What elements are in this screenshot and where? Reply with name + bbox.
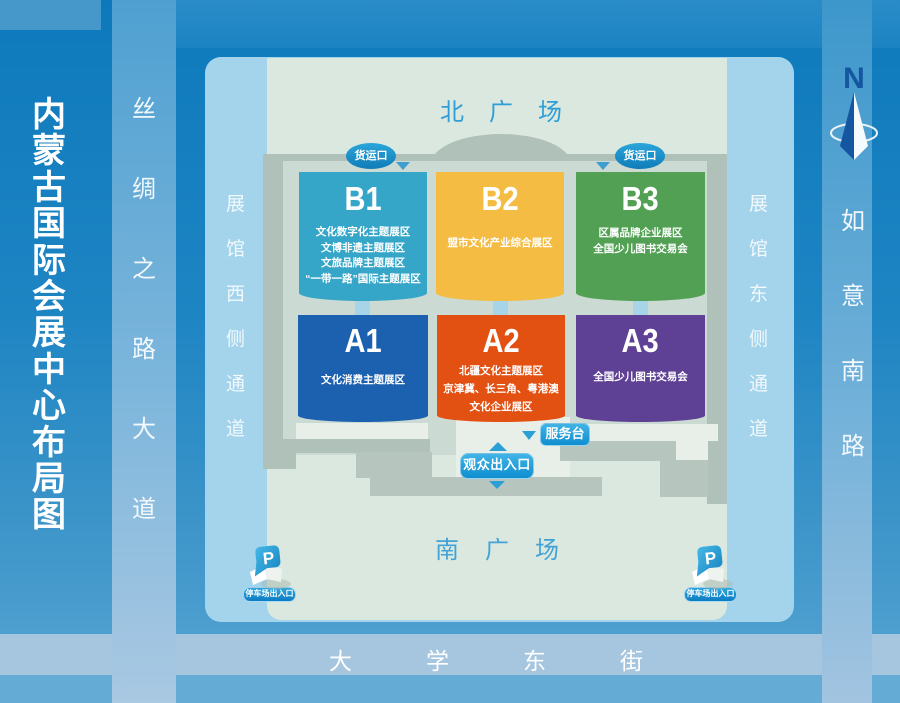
svg-text:N: N bbox=[843, 62, 865, 95]
svg-text:P: P bbox=[262, 548, 275, 568]
svg-text:P: P bbox=[704, 548, 717, 568]
